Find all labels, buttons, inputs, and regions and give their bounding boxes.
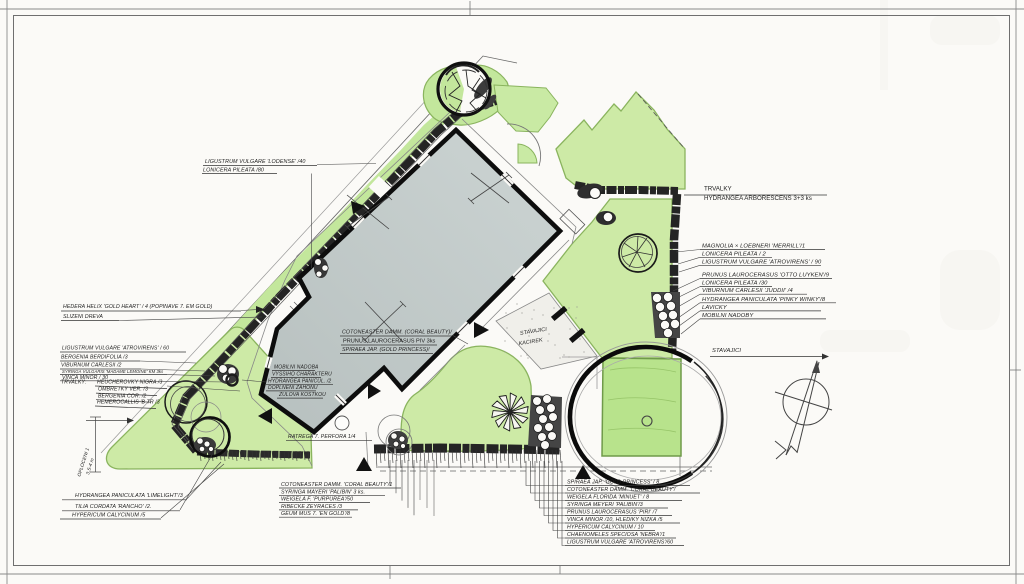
svg-text:VINCA MINOR /10, HLEDIKY NI: VINCA MINOR /10, HLEDIKY NIZKA /5 xyxy=(567,517,663,523)
svg-text:LONICERA PILEATA /30: LONICERA PILEATA /30 xyxy=(702,281,768,287)
svg-text:SPIRAEA JAP. 'GOLD PRINCESS': SPIRAEA JAP. 'GOLD PRINCESS' / 8 xyxy=(567,480,659,486)
svg-text:TRVALKY:: TRVALKY: xyxy=(61,380,87,386)
svg-text:SYRINGA VULGARIS 'MADAME LEMOI: SYRINGA VULGARIS 'MADAME LEMOINE' KM 3ks xyxy=(62,369,164,374)
svg-text:VYSSIHO CHARAKTERU: VYSSIHO CHARAKTERU xyxy=(272,372,332,378)
svg-text:SPIRAEA JAP. (GOLD PRINCESS: SPIRAEA JAP. (GOLD PRINCESS)! xyxy=(342,347,430,353)
svg-text:HEMEROCALLIS 'B TR /3: HEMEROCALLIS 'B TR /3 xyxy=(97,400,160,406)
svg-text:LIGUSTRUM VULGARE 'ATROVIREN: LIGUSTRUM VULGARE 'ATROVIRENS' / 60 xyxy=(62,346,169,352)
svg-text:LAVICKY: LAVICKY xyxy=(702,305,728,311)
svg-text:BERGENIA COR. /2: BERGENIA COR. /2 xyxy=(98,393,146,399)
svg-text:PRUNUS LAUROCERASUS PIV 3ks: PRUNUS LAUROCERASUS PIV 3ks xyxy=(343,339,436,345)
svg-text:TILIA CORDATA 'RANCHO' /2.: TILIA CORDATA 'RANCHO' /2. xyxy=(75,504,152,510)
svg-text:LIGUSTRUM VULGARE 'LODENSE': LIGUSTRUM VULGARE 'LODENSE' /40 xyxy=(205,159,305,165)
svg-text:MOBILNI NADOBY: MOBILNI NADOBY xyxy=(702,313,754,319)
svg-text:RATREGA 7. PERFORA 1/4: RATREGA 7. PERFORA 1/4 xyxy=(288,434,355,440)
svg-text:PRUNUS LAUROCERASUS 'OTTO LU: PRUNUS LAUROCERASUS 'OTTO LUYKEN'/9 xyxy=(702,273,830,279)
svg-text:VIBURNUM CARLESII 'JUDDII' /: VIBURNUM CARLESII 'JUDDII' /4 xyxy=(702,288,793,294)
svg-text:WEIGELA F. 'PURPUREA'/50: WEIGELA F. 'PURPUREA'/50 xyxy=(281,497,353,503)
svg-text:HEDERA HELIX 'GOLD HEART' / 4: HEDERA HELIX 'GOLD HEART' / 4 (POPINAVE … xyxy=(63,304,213,310)
svg-text:PRUNUS LAUROCERASUS 'PIRI' /7: PRUNUS LAUROCERASUS 'PIRI' /7 xyxy=(567,510,658,516)
svg-text:COTONEASTER DAMM. 'CORAL BEAU: COTONEASTER DAMM. 'CORAL BEAUTY'/ xyxy=(567,487,676,493)
svg-text:LIGUSTRUM VULGARE 'ATROVIRENS: LIGUSTRUM VULGARE 'ATROVIRENS'/60 xyxy=(567,540,673,546)
svg-text:RIBECKE ZEYRACES /3: RIBECKE ZEYRACES /3 xyxy=(281,504,342,510)
svg-text:LONICERA PILEATA /80: LONICERA PILEATA /80 xyxy=(203,168,264,174)
svg-text:HYPERICUM CALYCINUM /5: HYPERICUM CALYCINUM /5 xyxy=(72,513,146,519)
svg-text:COTONEASTER DAMM. (CORAL BE: COTONEASTER DAMM. (CORAL BEAUTY)/ xyxy=(342,330,452,336)
svg-text:HYDRANGEA PANICULATA 'LIMELI: HYDRANGEA PANICULATA 'LIMELIGHT'/3 xyxy=(75,493,183,499)
svg-text:BERGENIA BERDIFOLIA /3: BERGENIA BERDIFOLIA /3 xyxy=(61,355,128,361)
svg-text:HYPERICUM CALYCINUM / 10: HYPERICUM CALYCINUM / 10 xyxy=(567,525,644,531)
svg-text:LONICERA PILEATA / 2: LONICERA PILEATA / 2 xyxy=(702,251,767,257)
svg-text:SLIZENI DREVA: SLIZENI DREVA xyxy=(63,314,103,320)
svg-text:HYDRANGEA ARBORESCENS 3+3 ks: HYDRANGEA ARBORESCENS 3+3 ks xyxy=(704,195,812,202)
svg-text:HYDRANGEA PANICUL. /2: HYDRANGEA PANICUL. /2 xyxy=(268,379,331,385)
svg-text:HYDRANGEA PANICULATA 'PINKY: HYDRANGEA PANICULATA 'PINKY WINKY'/8 xyxy=(702,297,826,303)
svg-text:SYRINGA MAYERI 'PALIBIN' 3 k: SYRINGA MAYERI 'PALIBIN' 3 ks. xyxy=(281,489,365,495)
svg-text:CHAENOMELES SPECIOSA 'NEBRA': CHAENOMELES SPECIOSA 'NEBRA'/1 xyxy=(567,532,665,538)
svg-text:VIBURNUM CARLESII /2: VIBURNUM CARLESII /2 xyxy=(61,363,122,369)
svg-text:ZULOVA KOSTKOU: ZULOVA KOSTKOU xyxy=(278,392,326,398)
svg-text:STAVAJICI: STAVAJICI xyxy=(712,348,741,354)
svg-text:MOBILNI NADOBA: MOBILNI NADOBA xyxy=(274,365,319,371)
svg-text:WEIGELA FLORIDA 'MINUET' /: WEIGELA FLORIDA 'MINUET' / 8 xyxy=(567,495,649,501)
svg-text:HEUCHEROVKY NIGRA /3: HEUCHEROVKY NIGRA /3 xyxy=(97,380,162,386)
svg-text:GEUM MUS 7. 'EN GOLD'/8: GEUM MUS 7. 'EN GOLD'/8 xyxy=(281,511,350,517)
svg-text:OMBRETKY VER. /3: OMBRETKY VER. /3 xyxy=(98,387,148,393)
svg-text:SYRINGA MEYERI 'PALIBIN'/3: SYRINGA MEYERI 'PALIBIN'/3 xyxy=(567,502,643,508)
svg-text:DOPLNENI ZAHONU: DOPLNENI ZAHONU xyxy=(268,385,318,391)
svg-text:COTONEASTER DAMM. 'CORAL BEAUT: COTONEASTER DAMM. 'CORAL BEAUTY'/1 xyxy=(281,482,392,488)
svg-text:MAGNOLIA × LOEBNERI 'MERRILL: MAGNOLIA × LOEBNERI 'MERRILL'/1 xyxy=(702,244,805,250)
svg-text:TRVALKY: TRVALKY xyxy=(704,186,732,193)
svg-text:LIGUSTRUM VULGARE 'ATROVIRENS': LIGUSTRUM VULGARE 'ATROVIRENS' / 90 xyxy=(702,259,822,265)
